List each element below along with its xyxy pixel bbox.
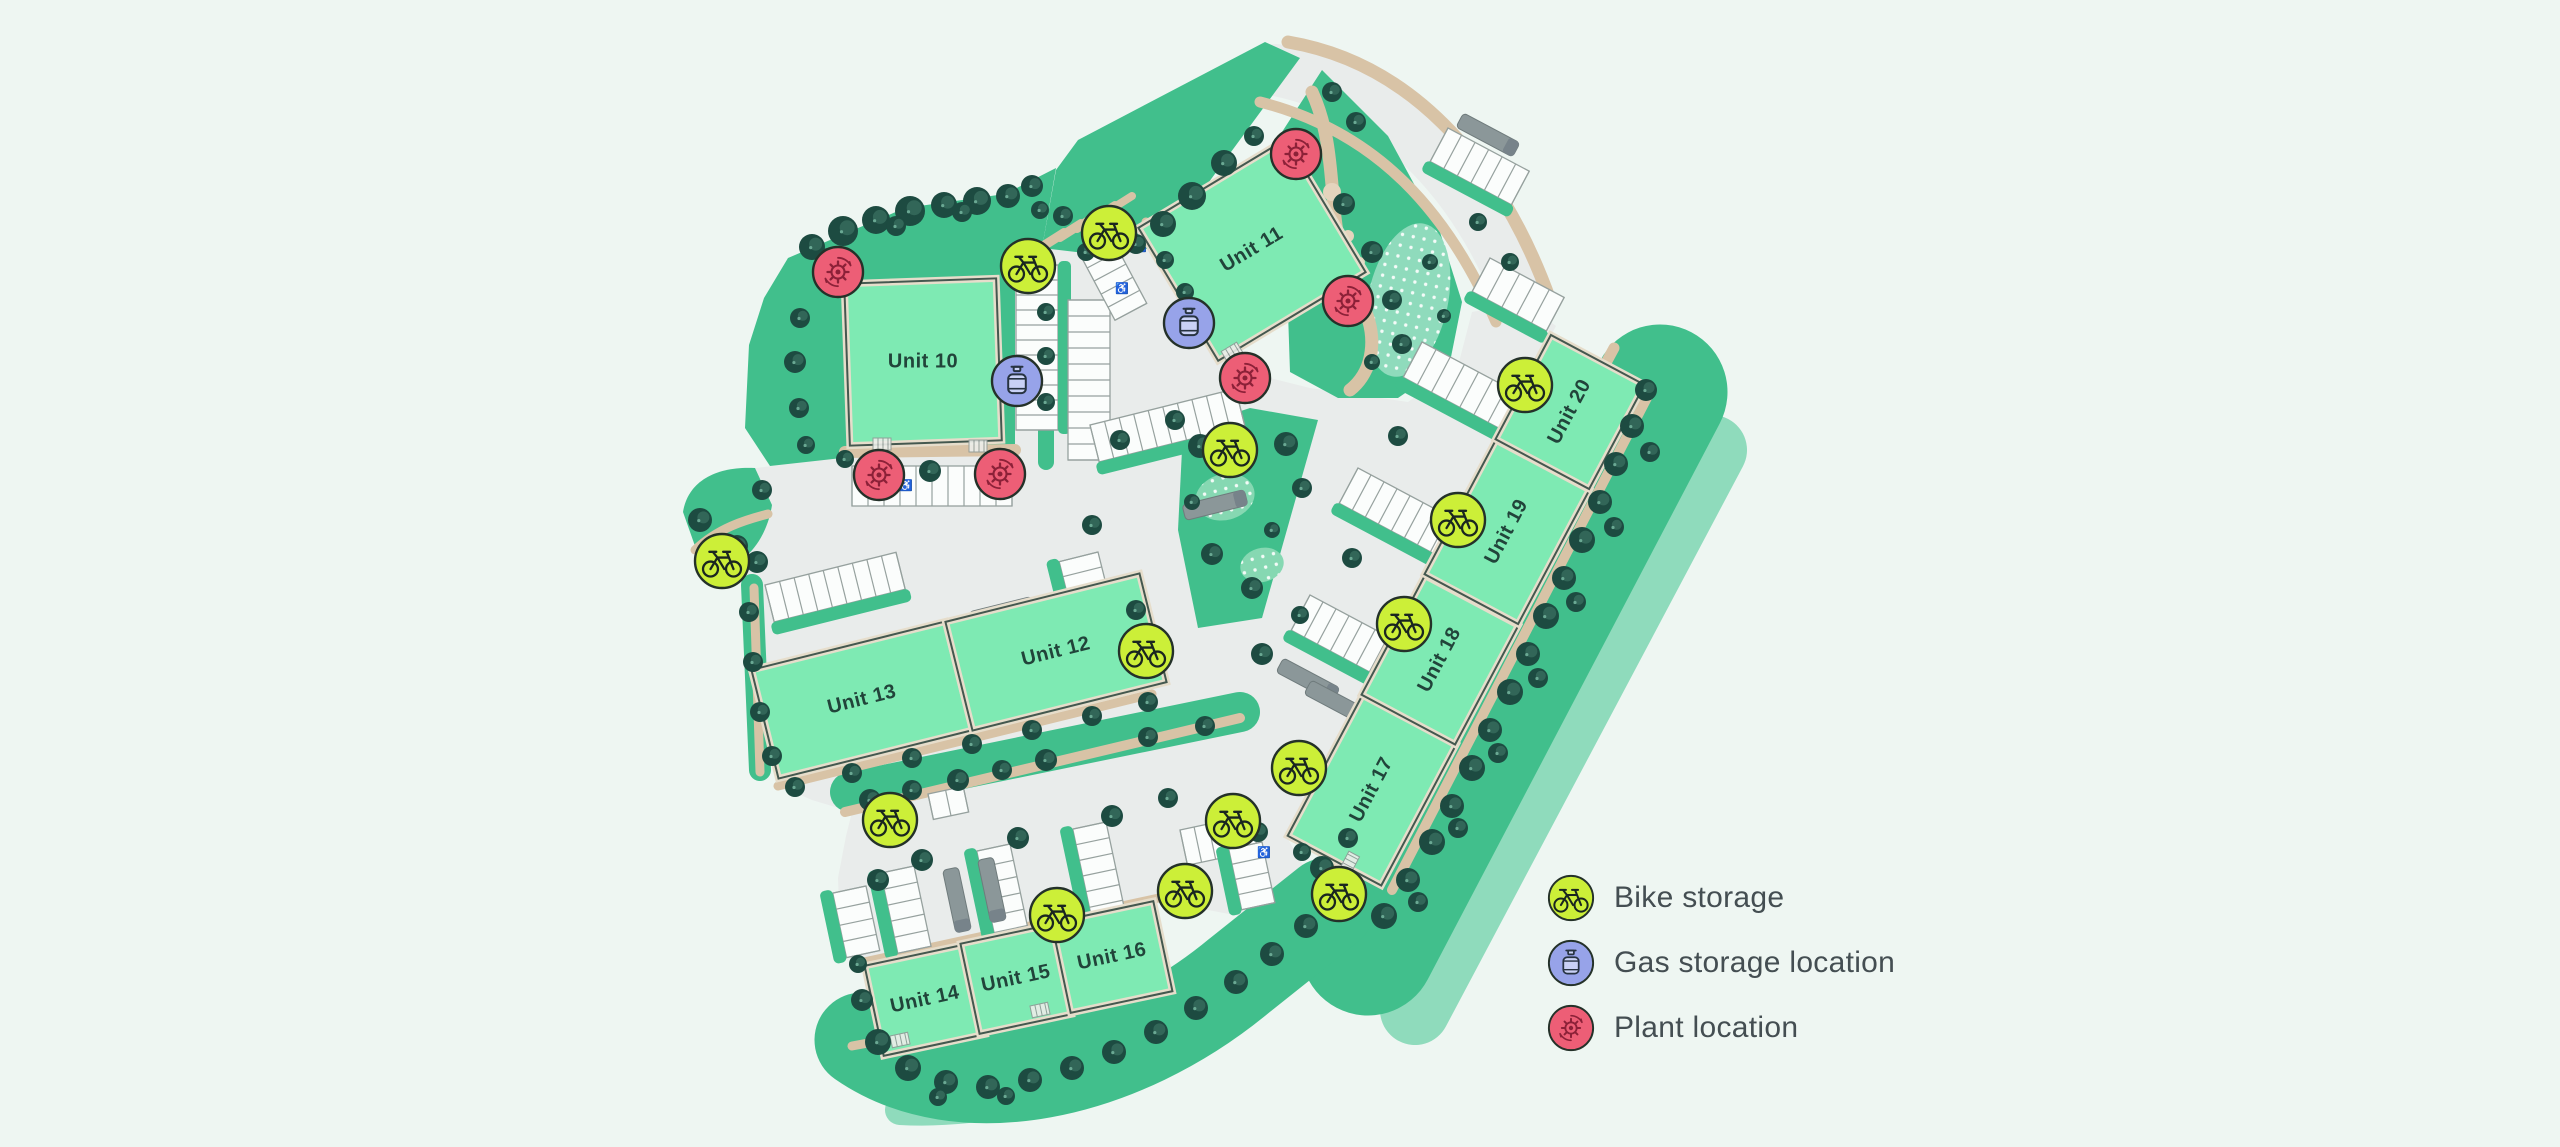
bike-storage-marker bbox=[1206, 794, 1260, 848]
svg-text:♿: ♿ bbox=[1115, 282, 1129, 295]
legend-label: Plant location bbox=[1614, 1011, 1798, 1045]
map-legend: Bike storage Gas storage location Plant … bbox=[1546, 872, 1895, 1054]
legend-item-gas-storage: Gas storage location bbox=[1546, 937, 1895, 989]
bike-storage-marker bbox=[1001, 239, 1055, 293]
bike-storage-marker bbox=[1082, 206, 1136, 260]
site-plan-page: ♿♿♿♿Unit 10Unit 11Unit 13Unit 12Unit 14U… bbox=[0, 0, 2560, 1147]
plant-location-marker bbox=[813, 247, 863, 297]
plant-location-marker bbox=[1271, 129, 1321, 179]
plant-location-marker bbox=[1220, 353, 1270, 403]
bike-storage-marker bbox=[1312, 867, 1366, 921]
site-plan-map: ♿♿♿♿Unit 10Unit 11Unit 13Unit 12Unit 14U… bbox=[0, 0, 2560, 1147]
gas-storage-marker bbox=[1164, 298, 1214, 348]
bike-storage-marker bbox=[1272, 741, 1326, 795]
legend-item-plant-location: Plant location bbox=[1546, 1002, 1895, 1054]
bike-icon bbox=[1546, 873, 1596, 923]
legend-item-bike-storage: Bike storage bbox=[1546, 872, 1895, 924]
svg-text:♿: ♿ bbox=[1257, 846, 1271, 859]
bike-storage-marker bbox=[1498, 358, 1552, 412]
bike-storage-marker bbox=[1377, 597, 1431, 651]
legend-label: Bike storage bbox=[1614, 881, 1784, 915]
site-plan: ♿♿♿♿Unit 10Unit 11Unit 13Unit 12Unit 14U… bbox=[0, 0, 2560, 1147]
gas-storage-marker bbox=[992, 356, 1042, 406]
plant-location-marker bbox=[854, 450, 904, 500]
gas-cylinder-icon bbox=[1546, 938, 1596, 988]
bike-storage-marker bbox=[1030, 888, 1084, 942]
bike-storage-marker bbox=[1431, 493, 1485, 547]
bike-storage-marker bbox=[863, 793, 917, 847]
bike-storage-marker bbox=[1203, 423, 1257, 477]
bike-storage-marker bbox=[1158, 864, 1212, 918]
plant-gear-icon bbox=[1546, 1003, 1596, 1053]
legend-label: Gas storage location bbox=[1614, 946, 1895, 980]
unit-label: Unit 10 bbox=[888, 350, 958, 372]
plant-location-marker bbox=[1323, 276, 1373, 326]
plant-location-marker bbox=[975, 449, 1025, 499]
bike-storage-marker bbox=[1119, 624, 1173, 678]
bike-storage-marker bbox=[695, 534, 749, 588]
